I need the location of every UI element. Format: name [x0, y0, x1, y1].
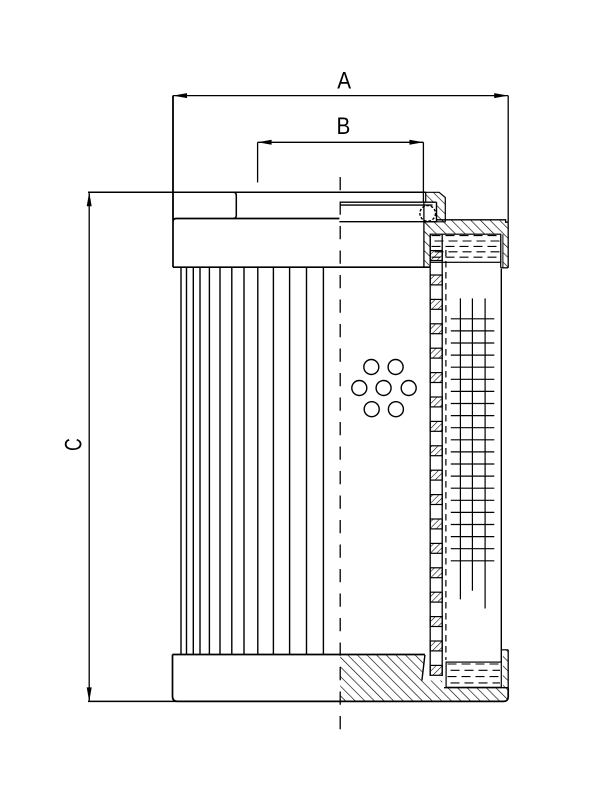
- svg-text:A: A: [337, 68, 351, 95]
- svg-text:B: B: [337, 113, 351, 140]
- svg-text:C: C: [61, 438, 88, 451]
